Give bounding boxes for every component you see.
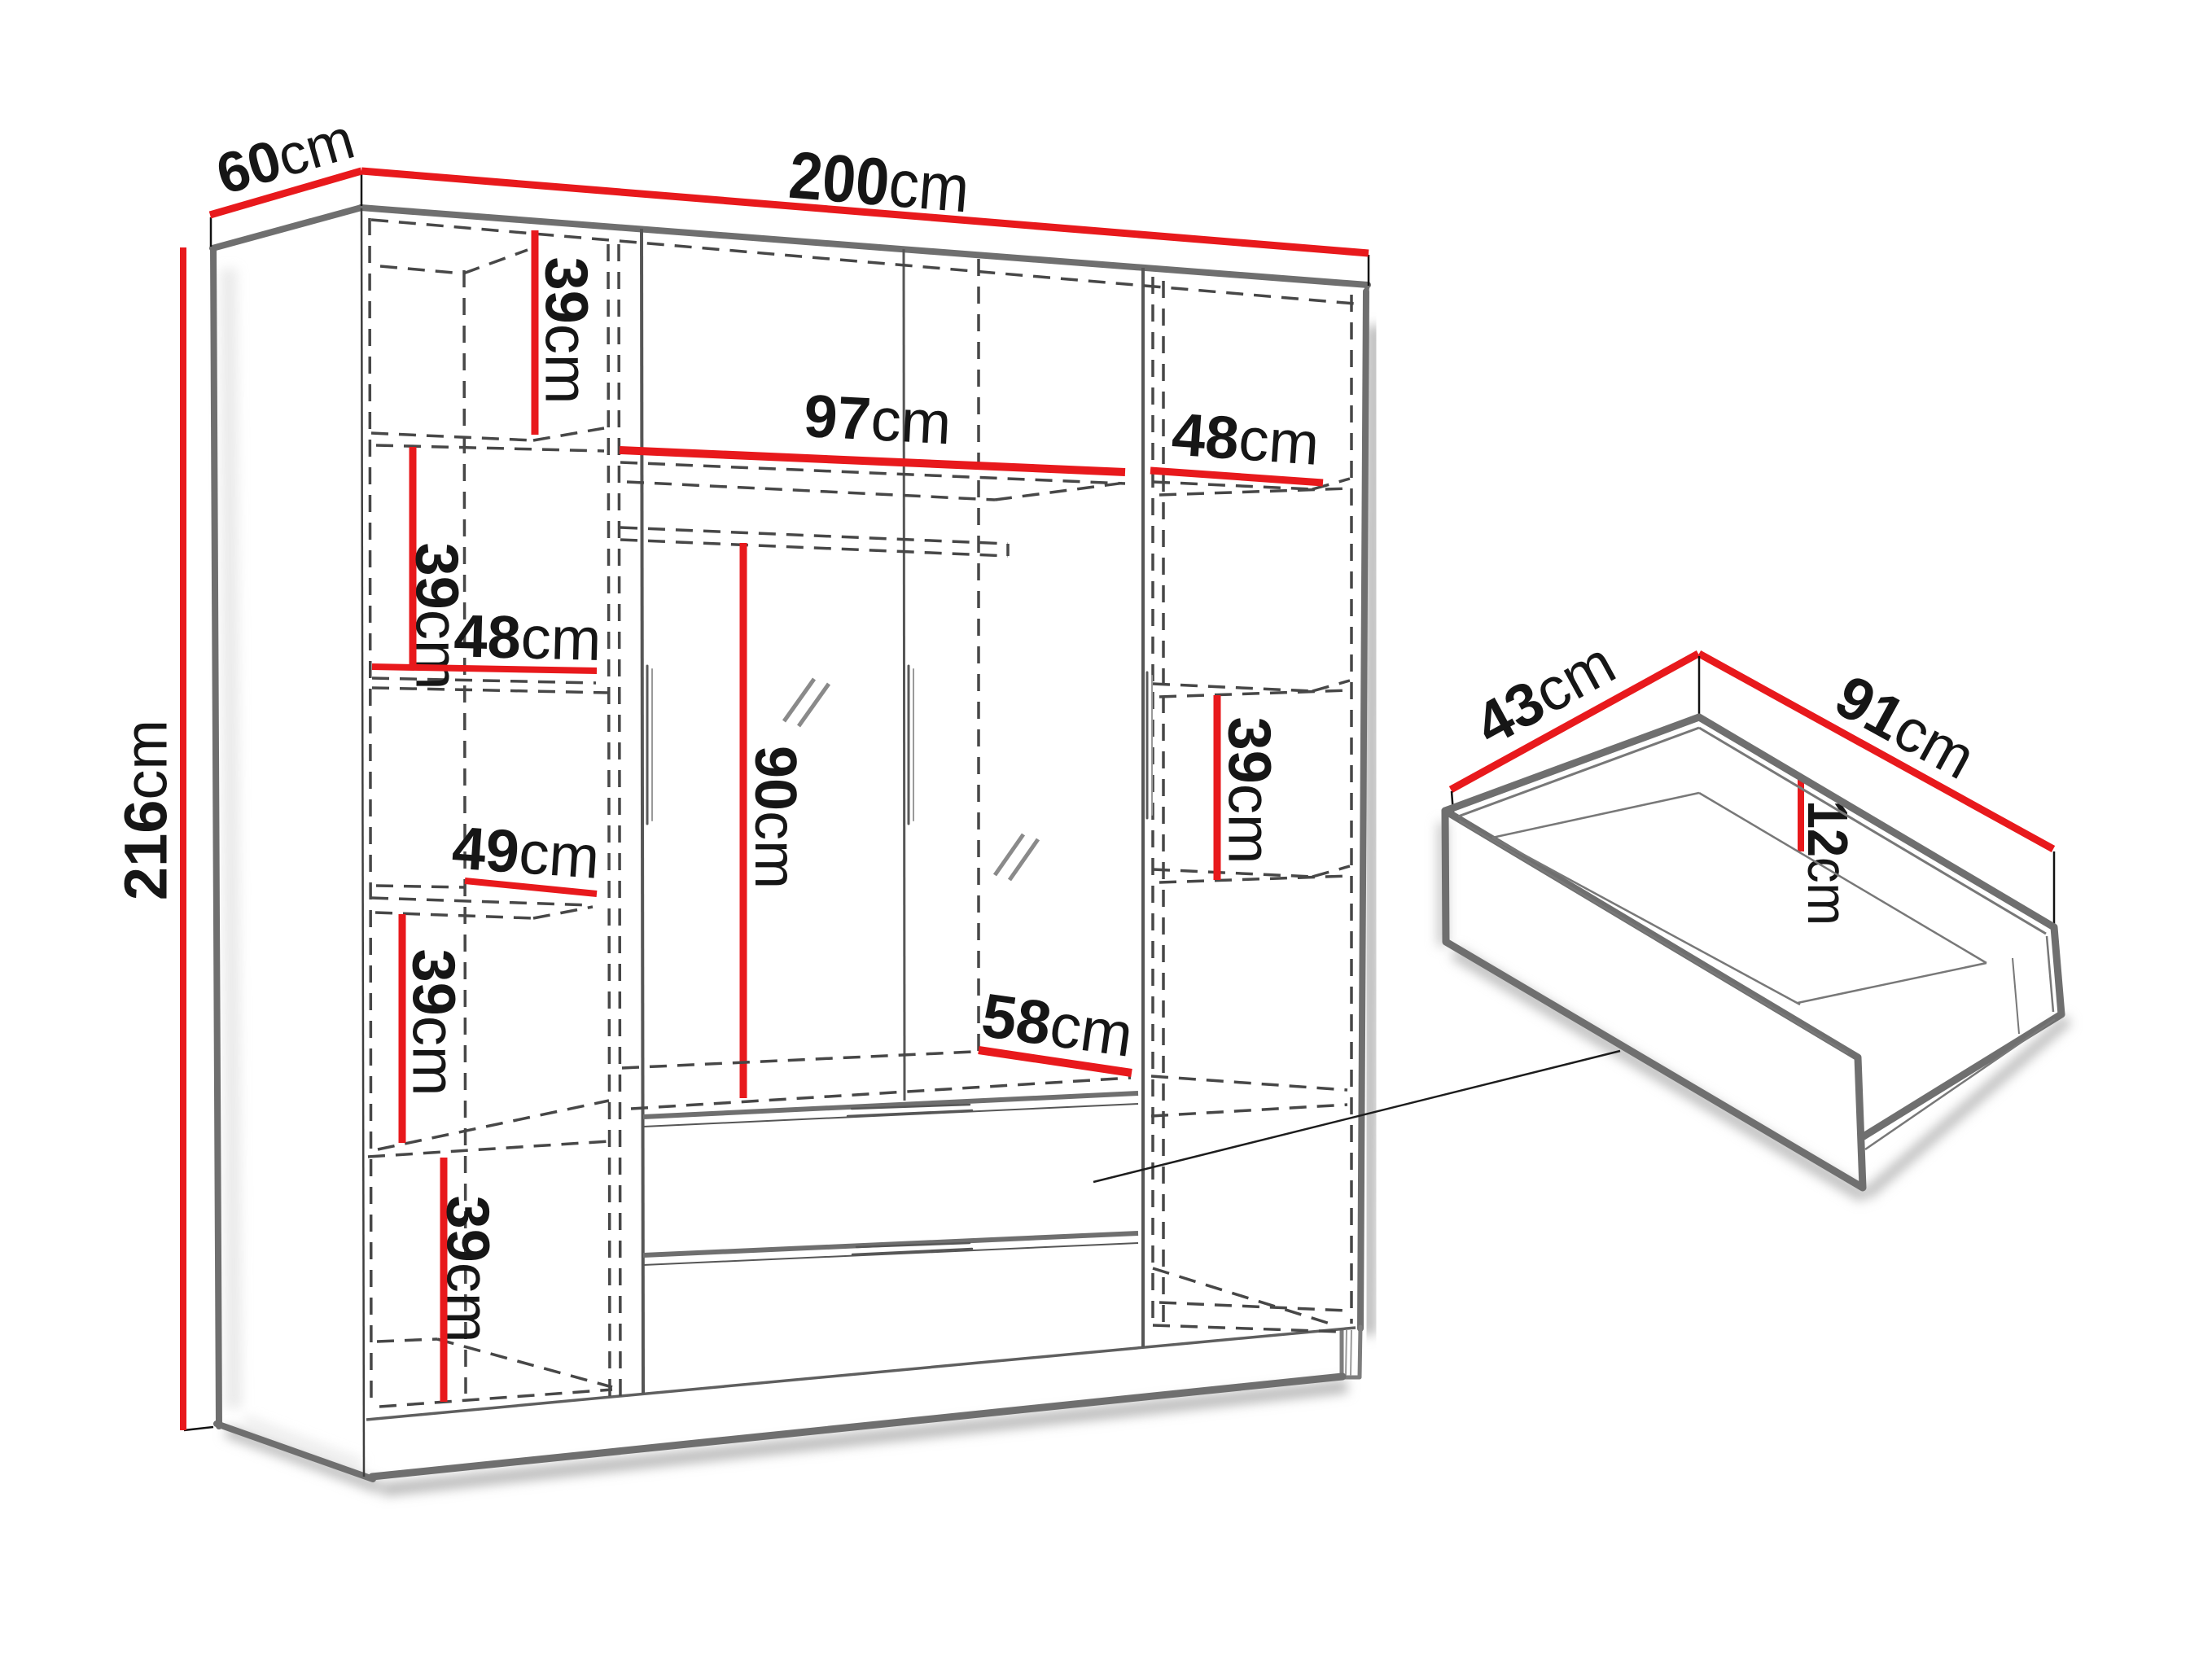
svg-text:12cm: 12cm xyxy=(1795,800,1859,926)
svg-text:97cm: 97cm xyxy=(802,382,953,457)
svg-text:48cm: 48cm xyxy=(453,602,602,673)
svg-text:39cm: 39cm xyxy=(1216,717,1283,865)
svg-text:39cm: 39cm xyxy=(532,257,600,405)
svg-text:48cm: 48cm xyxy=(1170,400,1321,477)
svg-text:49cm: 49cm xyxy=(450,813,602,891)
svg-text:39cm: 39cm xyxy=(400,949,467,1097)
svg-text:216cm: 216cm xyxy=(112,720,180,900)
svg-text:200cm: 200cm xyxy=(786,137,972,226)
svg-text:90cm: 90cm xyxy=(742,746,808,889)
svg-text:39cm: 39cm xyxy=(434,1196,502,1343)
